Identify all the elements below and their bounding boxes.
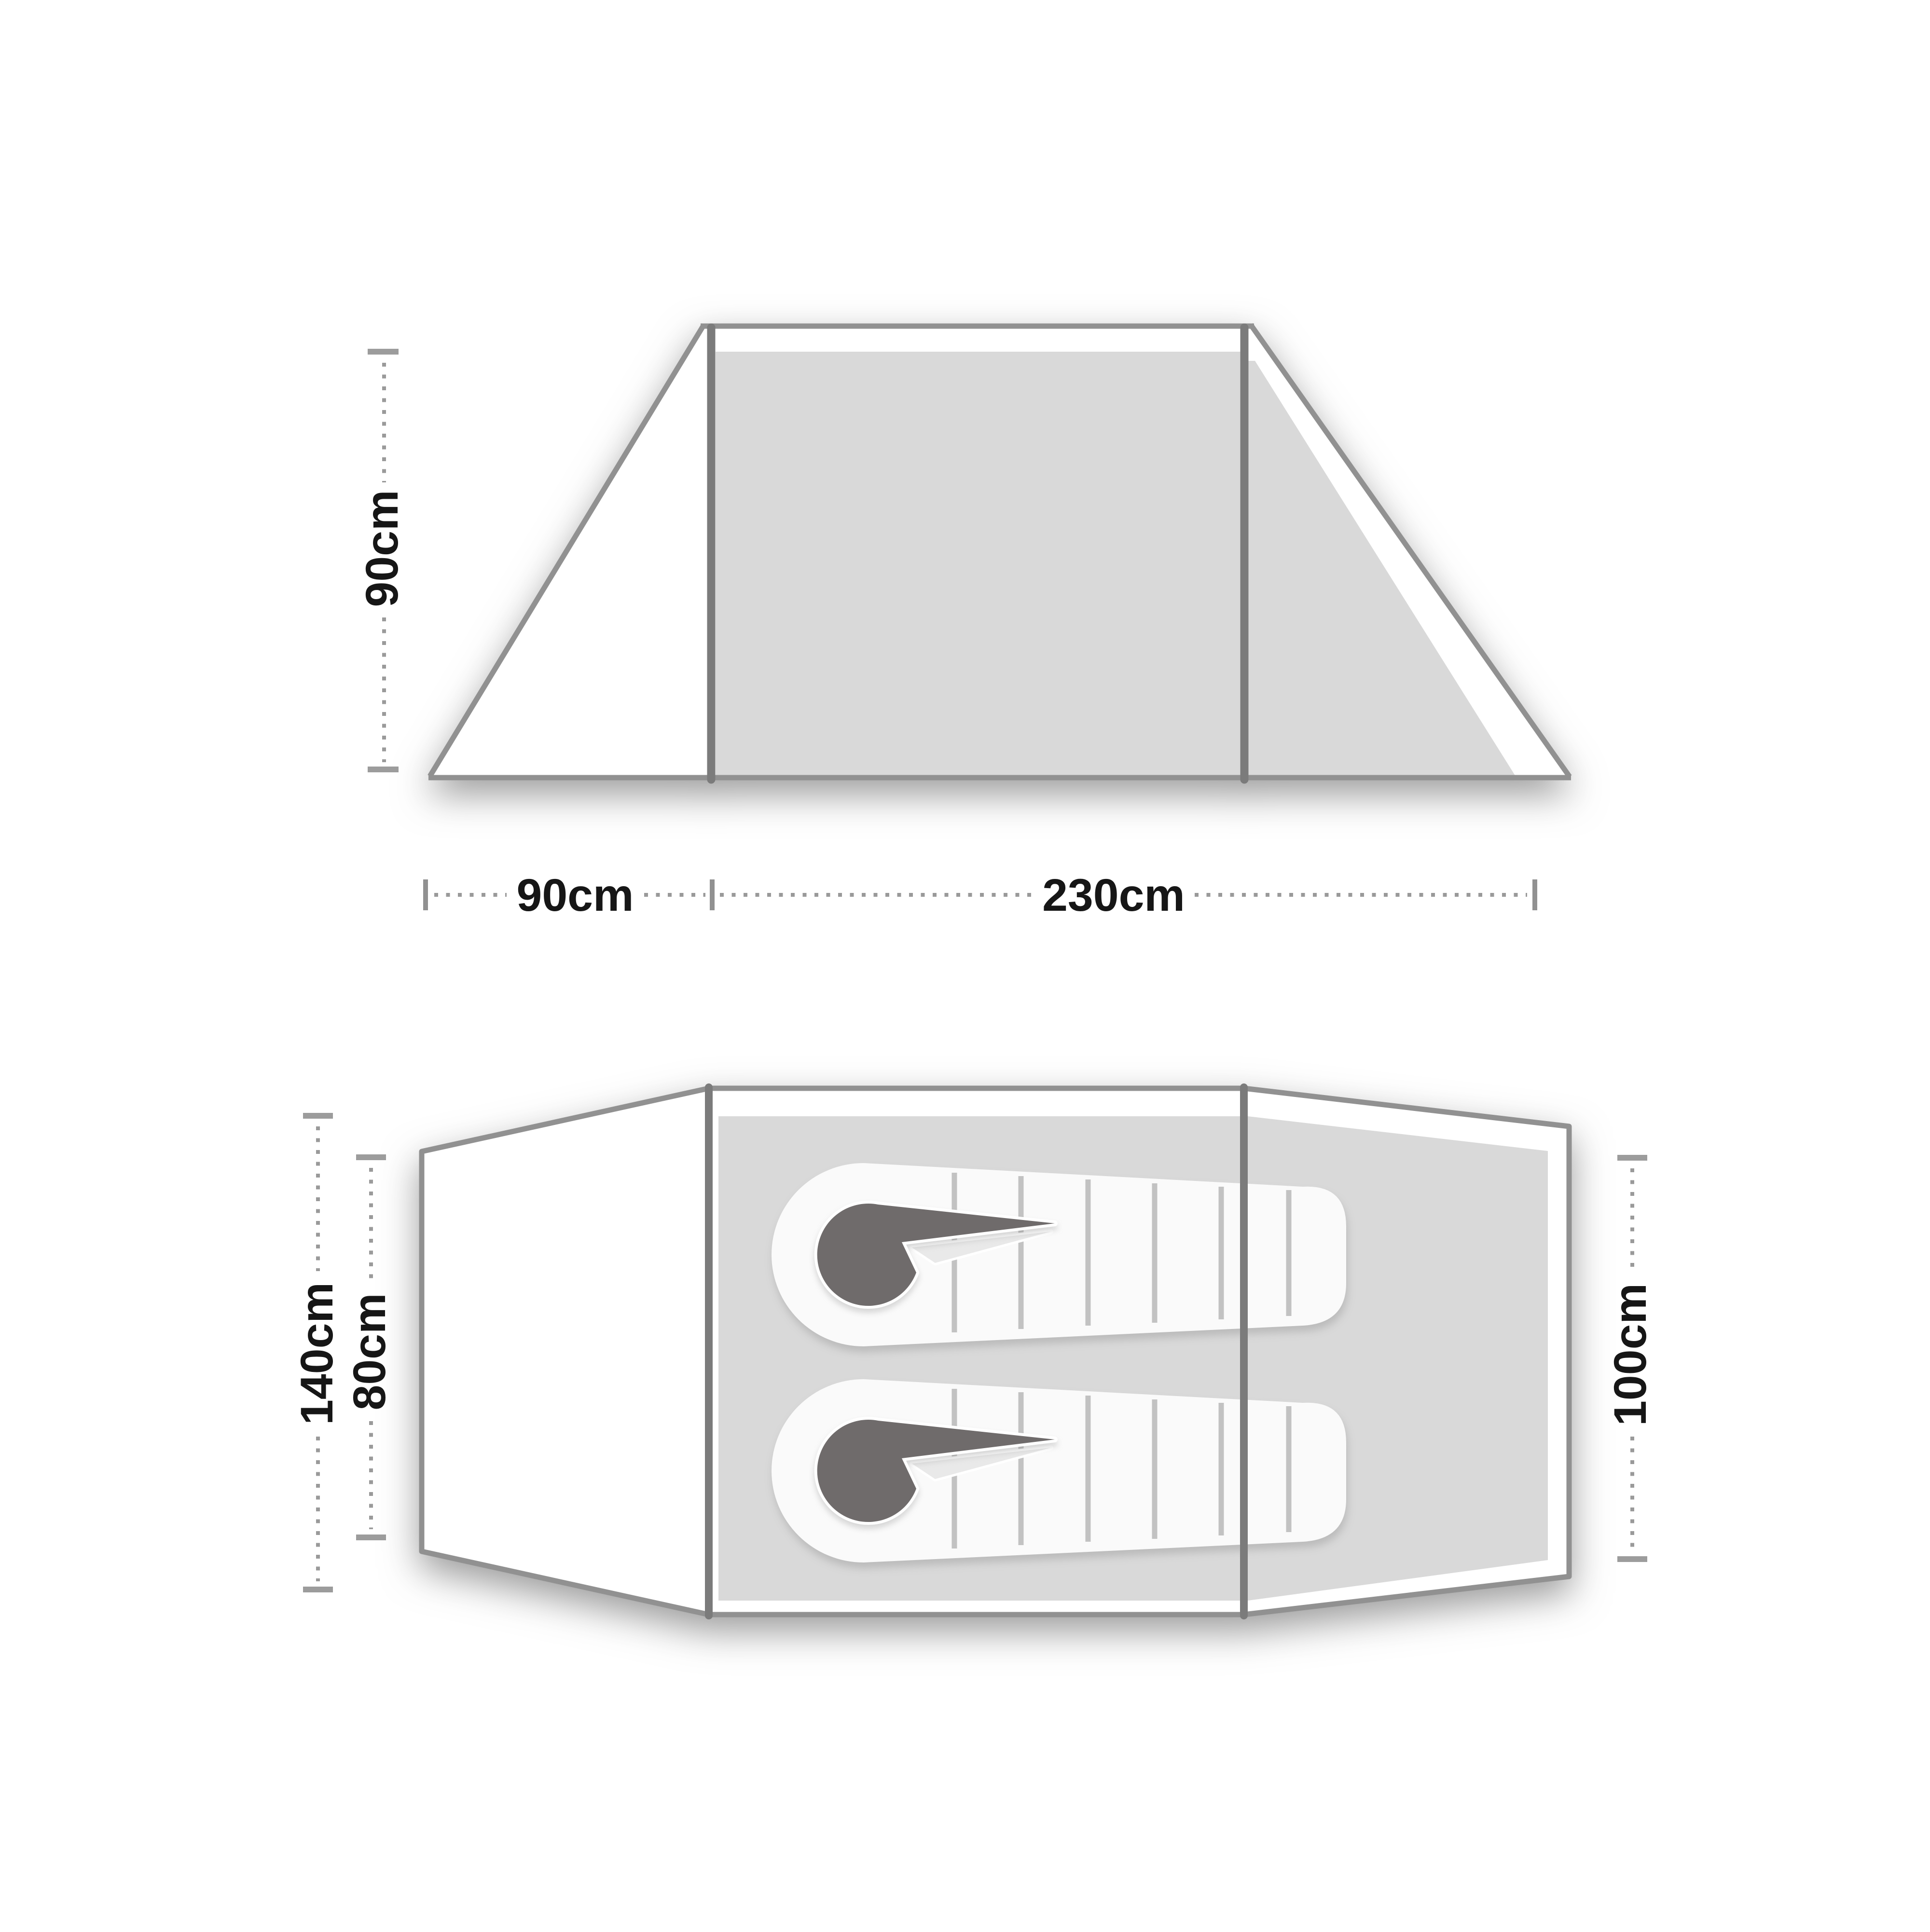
svg-text:230cm: 230cm (1042, 870, 1185, 921)
svg-text:140cm: 140cm (291, 1282, 343, 1425)
svg-text:100cm: 100cm (1605, 1283, 1656, 1426)
svg-text:90cm: 90cm (357, 490, 408, 607)
svg-text:80cm: 80cm (344, 1293, 395, 1411)
svg-text:90cm: 90cm (517, 870, 634, 921)
